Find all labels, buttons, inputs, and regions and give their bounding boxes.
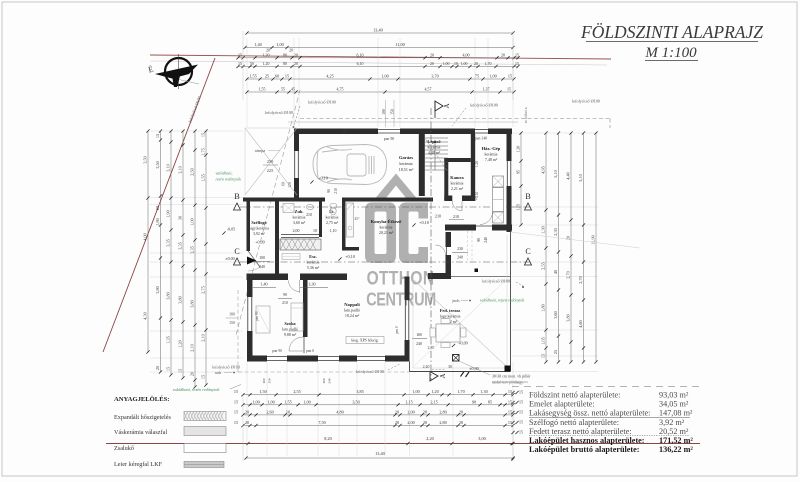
svg-text:rezén redőnytök: rezén redőnytök: [216, 177, 242, 182]
svg-text:4,80: 4,80: [336, 409, 343, 415]
svg-text:3,10: 3,10: [166, 164, 172, 172]
svg-text:Kamra: Kamra: [450, 175, 464, 180]
svg-text:5,10: 5,10: [578, 174, 584, 182]
svg-text:2,75: 2,75: [201, 286, 207, 294]
svg-text:Expandált hőszigetelés: Expandált hőszigetelés: [114, 414, 171, 421]
svg-text:160: 160: [416, 333, 422, 337]
svg-text:4,75: 4,75: [337, 87, 344, 93]
svg-text:35: 35: [343, 129, 347, 133]
svg-text:10: 10: [313, 229, 317, 233]
svg-text:valódhani, rejtett redőnytök: valódhani, rejtett redőnytök: [480, 298, 524, 304]
svg-text:2,20: 2,20: [426, 436, 434, 442]
svg-text:210: 210: [453, 214, 459, 219]
svg-text:15: 15: [508, 74, 512, 79]
svg-text:A: A: [439, 373, 447, 378]
svg-text:Szoba: Szoba: [284, 321, 296, 326]
svg-text:15: 15: [515, 52, 519, 57]
svg-text:Lakóépület hasznos alapterület: Lakóépület hasznos alapterülete:: [529, 436, 645, 445]
svg-text:1,00: 1,00: [276, 42, 284, 48]
svg-text:pan 140: pan 140: [475, 137, 487, 141]
svg-text:90: 90: [477, 238, 481, 242]
svg-text:60: 60: [282, 182, 286, 186]
svg-text:1,37: 1,37: [483, 87, 490, 93]
svg-text:valódhani, rezén redőnytok: valódhani, rezén redőnytok: [173, 387, 220, 393]
svg-text:2,15: 2,15: [430, 399, 437, 405]
svg-text:C: C: [525, 247, 530, 256]
svg-text:2,50: 2,50: [190, 168, 196, 176]
svg-text:+0,09: +0,09: [458, 341, 467, 347]
svg-text:m. kálsni a.: m. kálsni a.: [524, 107, 528, 124]
svg-text:5,10: 5,10: [553, 170, 559, 178]
svg-text:2,55: 2,55: [541, 262, 547, 270]
svg-text:1,55: 1,55: [259, 87, 266, 93]
svg-text:1,00: 1,00: [190, 218, 196, 226]
svg-text:2,00: 2,00: [293, 229, 300, 234]
svg-text:2,80: 2,80: [439, 409, 446, 415]
svg-text:4,40: 4,40: [566, 172, 572, 180]
svg-text:kerámia: kerámia: [307, 260, 320, 265]
svg-text:pan 90: pan 90: [272, 349, 282, 353]
svg-text:15: 15: [508, 420, 512, 425]
svg-text:250: 250: [267, 159, 274, 164]
svg-text:5,36 m²: 5,36 m²: [307, 265, 320, 271]
svg-text:1,55: 1,55: [284, 399, 291, 405]
svg-text:kerámia: kerámia: [326, 215, 339, 220]
svg-text:20: 20: [190, 372, 195, 376]
svg-text:+0,10: +0,10: [419, 220, 429, 226]
svg-text:Fed. terasz: Fed. terasz: [440, 308, 461, 313]
svg-text:1,00: 1,00: [489, 74, 496, 80]
svg-text:120: 120: [288, 182, 292, 188]
svg-text:30/30 cm mon. vb pillér: 30/30 cm mon. vb pillér: [492, 374, 531, 379]
svg-text:240: 240: [457, 256, 463, 260]
svg-text:15: 15: [155, 134, 160, 138]
svg-text:20: 20: [430, 52, 434, 57]
svg-text:pan 90: pan 90: [384, 137, 395, 141]
svg-text:2,21 m²: 2,21 m²: [451, 186, 464, 192]
svg-text:FÖLDSZINTI ALAPRAJZ: FÖLDSZINTI ALAPRAJZ: [580, 22, 763, 42]
svg-text:Váskerámia válaszfal: Váskerámia válaszfal: [114, 429, 167, 436]
svg-text:+0,10: +0,10: [475, 192, 480, 201]
svg-text:90: 90: [472, 399, 476, 404]
svg-text:kerámia: kerámia: [485, 152, 498, 157]
svg-text:Szélfogó: Szélfogó: [251, 220, 266, 225]
svg-text:kerámia: kerámia: [293, 215, 306, 220]
svg-text:3,92 m²: 3,92 m²: [659, 418, 685, 427]
svg-text:lefolyócső Ø100: lefolyócső Ø100: [212, 365, 240, 370]
svg-text:Fedett terasz nettó alapterüle: Fedett terasz nettó alapterülete:: [529, 427, 632, 436]
svg-text:240: 240: [328, 378, 332, 384]
svg-text:20: 20: [423, 420, 427, 425]
svg-text:15: 15: [238, 62, 242, 66]
svg-text:150: 150: [229, 321, 235, 325]
svg-text:lefolyócső Ø100: lefolyócső Ø100: [265, 110, 293, 115]
svg-text:ANYAGJELÖLÉS:: ANYAGJELÖLÉS:: [114, 395, 169, 403]
svg-text:2,40: 2,40: [423, 365, 430, 370]
svg-text:1,30: 1,30: [541, 226, 547, 234]
svg-text:3,35: 3,35: [190, 246, 196, 254]
svg-text:2,70: 2,70: [566, 271, 572, 279]
svg-text:20: 20: [155, 366, 160, 370]
svg-text:15: 15: [285, 74, 289, 79]
svg-text:150: 150: [268, 378, 272, 384]
svg-text:utolsó terv jóváhagy.: utolsó terv jóváhagy.: [492, 381, 524, 385]
svg-text:1,00: 1,00: [252, 399, 259, 405]
svg-text:1,20: 1,20: [475, 161, 480, 168]
svg-text:15: 15: [519, 431, 523, 435]
svg-text:93,03 m²: 93,03 m²: [659, 391, 689, 400]
svg-text:15: 15: [507, 87, 511, 92]
svg-text:OTTHON: OTTHON: [367, 267, 435, 289]
svg-text:Zsalukő: Zsalukő: [114, 445, 134, 452]
svg-text:2,70: 2,70: [578, 276, 584, 284]
svg-text:Lakóépület bruttó alapterülete: Lakóépület bruttó alapterülete:: [529, 445, 640, 454]
svg-text:lam.padló: lam.padló: [344, 308, 360, 313]
svg-text:20: 20: [459, 409, 463, 414]
svg-text:100: 100: [259, 256, 265, 260]
svg-text:15: 15: [166, 367, 171, 371]
svg-text:2,10: 2,10: [190, 344, 196, 352]
svg-text:10: 10: [454, 62, 458, 66]
svg-text:15: 15: [201, 133, 206, 137]
svg-text:2,10: 2,10: [201, 334, 207, 342]
svg-text:Szélfogó nettó alapterülete:: Szélfogó nettó alapterülete:: [529, 418, 619, 427]
svg-text:10: 10: [286, 409, 290, 414]
svg-text:4,40 m²: 4,40 m²: [428, 150, 441, 156]
svg-text:1,35: 1,35: [166, 336, 172, 344]
svg-text:7,48 m²: 7,48 m²: [485, 157, 498, 163]
svg-text:1,80: 1,80: [541, 304, 547, 312]
svg-text:2,30: 2,30: [553, 228, 559, 236]
svg-text:15: 15: [519, 421, 523, 425]
svg-text:É: É: [147, 64, 154, 75]
svg-text:15: 15: [234, 389, 238, 394]
svg-text:45°: 45°: [354, 217, 360, 221]
svg-text:9,88 m²: 9,88 m²: [284, 332, 297, 338]
svg-text:1,20: 1,20: [263, 52, 270, 58]
svg-text:lefolyócső Ø100: lefolyócső Ø100: [470, 103, 498, 108]
svg-text:240: 240: [416, 342, 422, 346]
svg-text:15: 15: [519, 411, 523, 415]
svg-text:20: 20: [474, 62, 478, 66]
svg-text:100: 100: [322, 378, 326, 384]
svg-text:3,50: 3,50: [352, 399, 359, 405]
svg-text:20: 20: [289, 49, 293, 53]
svg-text:M 1:100: M 1:100: [644, 45, 697, 61]
svg-text:1,90: 1,90: [166, 210, 172, 218]
svg-text:15: 15: [519, 401, 523, 405]
svg-text:180: 180: [229, 313, 235, 317]
svg-text:+0,10: +0,10: [345, 254, 355, 260]
svg-text:Ház.-Gép: Ház.-Gép: [482, 146, 501, 151]
svg-text:3,50: 3,50: [143, 156, 149, 164]
svg-text:80: 80: [283, 62, 287, 66]
svg-text:90: 90: [283, 293, 287, 297]
svg-text:lefolyócső Ø100: lefolyócső Ø100: [187, 96, 202, 124]
svg-text:136,22 m²: 136,22 m²: [659, 445, 693, 454]
svg-text:230: 230: [457, 247, 463, 251]
svg-text:Földszint nettó alapterülete:: Földszint nettó alapterülete:: [529, 391, 620, 400]
svg-text:3,60: 3,60: [553, 311, 559, 319]
svg-text:3,70: 3,70: [431, 74, 438, 80]
svg-text:15: 15: [234, 409, 238, 414]
svg-text:pan 0: pan 0: [306, 349, 314, 353]
svg-text:240: 240: [259, 265, 265, 269]
svg-text:kerámia: kerámia: [451, 181, 464, 186]
svg-text:2,60: 2,60: [266, 409, 273, 415]
svg-text:fagy.kerámia: fagy.kerámia: [249, 227, 269, 231]
svg-text:1,00: 1,00: [381, 74, 388, 80]
svg-text:2,75 m²: 2,75 m²: [326, 220, 339, 226]
svg-text:3,80: 3,80: [166, 292, 172, 300]
svg-text:25: 25: [553, 350, 558, 354]
svg-text:4,60: 4,60: [578, 320, 584, 328]
svg-text:30: 30: [178, 216, 183, 220]
svg-text:1,50: 1,50: [259, 389, 266, 395]
svg-text:Esz.: Esz.: [309, 254, 317, 259]
svg-text:15: 15: [519, 391, 523, 395]
svg-text:Emelet alapterülete:: Emelet alapterülete:: [529, 400, 595, 409]
svg-text:18,24 m²: 18,24 m²: [345, 313, 360, 319]
svg-text:7,50: 7,50: [318, 420, 325, 426]
svg-text:45: 45: [291, 87, 295, 92]
svg-text:90: 90: [327, 189, 331, 193]
svg-text:jmds: jmds: [451, 299, 460, 303]
svg-text:±0,00: ±0,00: [225, 256, 234, 262]
svg-text:1,05: 1,05: [541, 337, 547, 345]
svg-text:60: 60: [155, 206, 160, 210]
svg-text:3,80: 3,80: [190, 300, 196, 308]
svg-text:3,80: 3,80: [566, 314, 572, 322]
svg-text:34,05 m²: 34,05 m²: [659, 400, 689, 409]
svg-text:1,00: 1,00: [267, 399, 274, 405]
svg-text:lefolyócső Ø100: lefolyócső Ø100: [308, 100, 336, 105]
svg-text:3,30: 3,30: [308, 282, 315, 288]
svg-text:13,40: 13,40: [373, 28, 383, 34]
svg-text:fagy.kerámia: fagy.kerámia: [440, 314, 461, 319]
svg-text:80: 80: [283, 52, 287, 57]
svg-text:A: A: [443, 103, 451, 108]
svg-text:2,00: 2,00: [407, 420, 414, 426]
svg-text:225: 225: [267, 168, 274, 173]
svg-text:20: 20: [294, 62, 298, 66]
svg-text:4,25: 4,25: [326, 74, 333, 80]
svg-text:15: 15: [234, 420, 238, 425]
svg-text:210: 210: [282, 301, 288, 305]
svg-text:210: 210: [306, 213, 312, 217]
svg-text:13,40: 13,40: [375, 451, 385, 457]
svg-text:25: 25: [265, 74, 269, 79]
svg-text:Nappali: Nappali: [344, 302, 360, 307]
svg-text:15: 15: [508, 389, 512, 394]
svg-text:11,90: 11,90: [591, 235, 597, 245]
svg-text:4,95: 4,95: [541, 166, 547, 174]
svg-text:20: 20: [294, 52, 298, 57]
svg-text:rnds: rnds: [215, 371, 222, 375]
svg-text:1,75: 1,75: [201, 148, 207, 156]
svg-text:3,50: 3,50: [155, 161, 161, 169]
svg-text:1,30: 1,30: [480, 389, 487, 395]
svg-text:95: 95: [517, 170, 521, 174]
svg-text:2,00: 2,00: [407, 409, 414, 415]
svg-text:15: 15: [178, 369, 183, 373]
svg-text:1,15: 1,15: [405, 399, 412, 405]
svg-text:240: 240: [484, 237, 488, 243]
svg-text:kerámia: kerámia: [380, 225, 393, 230]
svg-text:18,51 m²: 18,51 m²: [399, 167, 414, 173]
svg-text:1,00: 1,00: [303, 399, 310, 405]
svg-text:3,35: 3,35: [166, 239, 172, 247]
svg-text:1,55: 1,55: [201, 174, 207, 182]
svg-text:lefolyócső Ø100: lefolyócső Ø100: [482, 279, 510, 284]
svg-text:15: 15: [541, 354, 546, 358]
svg-text:15: 15: [201, 375, 206, 379]
svg-text:8,20: 8,20: [324, 436, 332, 442]
svg-text:1,00: 1,00: [412, 389, 419, 395]
svg-text:B: B: [234, 192, 239, 201]
svg-text:147,08 m²: 147,08 m²: [659, 409, 693, 418]
svg-text:100: 100: [262, 378, 266, 384]
svg-text:1,20: 1,20: [431, 389, 438, 395]
svg-text:20: 20: [245, 409, 249, 414]
svg-text:50: 50: [250, 62, 254, 66]
svg-text:3,60 m²: 3,60 m²: [293, 220, 306, 226]
svg-text:20: 20: [395, 420, 399, 425]
svg-text:C: C: [234, 247, 239, 256]
svg-text:60: 60: [275, 74, 279, 79]
svg-text:20,52 m²: 20,52 m²: [659, 427, 689, 436]
svg-text:85: 85: [488, 399, 492, 404]
svg-text:210: 210: [334, 188, 338, 194]
svg-text:20: 20: [245, 420, 249, 425]
svg-text:3,85: 3,85: [356, 389, 363, 395]
svg-text:1,80: 1,80: [155, 218, 161, 226]
svg-text:kieg. XPS hőszig.: kieg. XPS hőszig.: [351, 339, 378, 343]
svg-text:3,35: 3,35: [178, 242, 184, 250]
svg-text:+0,09: +0,09: [255, 240, 264, 246]
svg-text:1,55: 1,55: [249, 74, 256, 80]
svg-text:3,92 m²: 3,92 m²: [253, 232, 266, 237]
svg-text:1,70: 1,70: [457, 389, 464, 395]
svg-text:20: 20: [395, 409, 399, 414]
svg-text:20: 20: [501, 52, 505, 57]
svg-text:20: 20: [430, 62, 434, 66]
svg-text:Leier kéregfal LKF: Leier kéregfal LKF: [114, 461, 163, 468]
svg-text:lefolyócső Ø100: lefolyócső Ø100: [356, 369, 384, 374]
svg-text:6,10: 6,10: [357, 52, 364, 58]
svg-text:1,10: 1,10: [330, 229, 337, 234]
svg-text:3,80: 3,80: [178, 296, 184, 304]
svg-text:lefolyócső Ø100: lefolyócső Ø100: [572, 99, 600, 104]
svg-text:55: 55: [281, 87, 285, 92]
svg-text:4,30: 4,30: [143, 312, 149, 320]
svg-text:3,80: 3,80: [155, 286, 161, 294]
svg-text:15: 15: [238, 52, 242, 57]
svg-text:3,00: 3,00: [478, 436, 486, 442]
svg-text:15: 15: [234, 399, 238, 404]
svg-text:kerámia: kerámia: [428, 145, 441, 150]
svg-text:Lépcső: Lépcső: [427, 139, 441, 144]
svg-text:1,40: 1,40: [254, 42, 262, 48]
svg-text:kerámia: kerámia: [399, 161, 412, 166]
svg-text:B: B: [525, 192, 530, 201]
svg-text:-0,05: -0,05: [227, 227, 235, 233]
svg-text:1,20: 1,20: [178, 340, 184, 348]
svg-text:+0,10: +0,10: [318, 176, 328, 182]
svg-text:210: 210: [435, 214, 441, 219]
svg-text:20: 20: [423, 409, 427, 414]
svg-text:15: 15: [515, 62, 519, 66]
svg-text:pm 0: pm 0: [395, 326, 399, 333]
svg-text:3,10: 3,10: [178, 166, 184, 174]
svg-text:Konyha-Étkező: Konyha-Étkező: [371, 219, 402, 224]
svg-text:CENTRUM: CENTRUM: [366, 289, 436, 310]
svg-text:pm 90: pm 90: [255, 311, 259, 320]
svg-text:2,55: 2,55: [293, 389, 300, 395]
svg-text:4,57: 4,57: [425, 87, 432, 93]
svg-text:Garázs: Garázs: [399, 155, 413, 160]
svg-text:rámpa: rámpa: [255, 148, 266, 153]
svg-text:1,40: 1,40: [260, 282, 267, 288]
svg-text:Zuh.: Zuh.: [295, 209, 304, 214]
svg-text:171,52 m²: 171,52 m²: [659, 436, 693, 445]
svg-text:2,80: 2,80: [439, 420, 446, 426]
svg-text:Lakásegység össz. nettó alapte: Lakásegység össz. nettó alapterülete:: [529, 409, 650, 418]
svg-text:30: 30: [448, 365, 452, 369]
svg-text:20: 20: [459, 420, 463, 425]
svg-text:40: 40: [553, 270, 558, 274]
svg-text:75: 75: [475, 74, 479, 79]
